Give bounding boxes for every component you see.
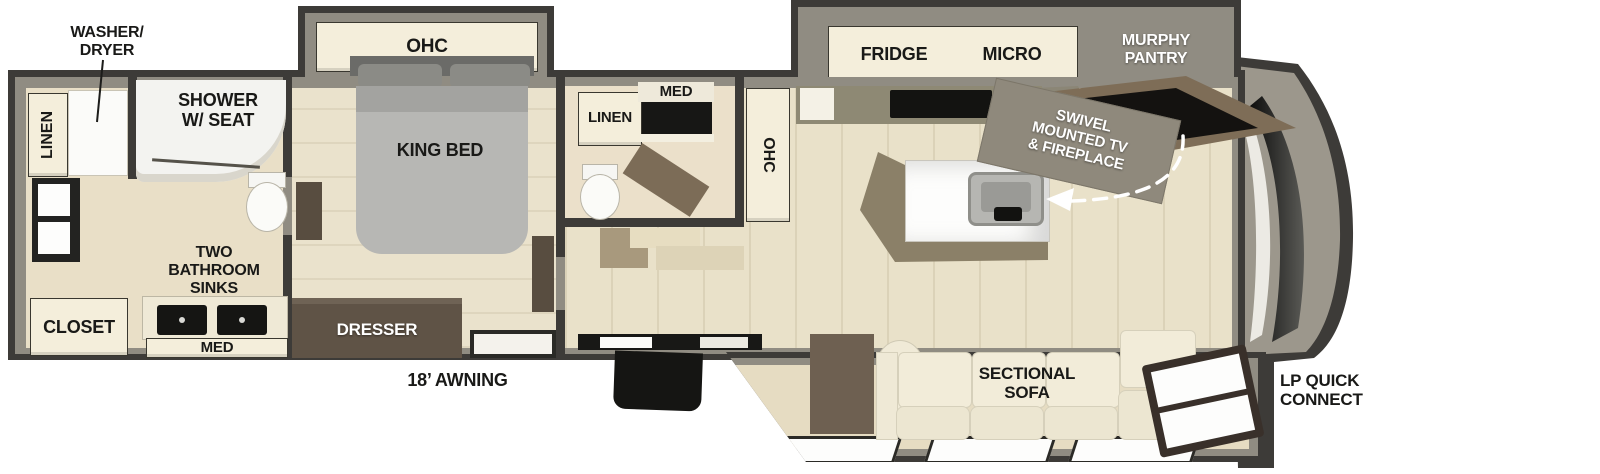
king-bed-label: KING BED [370,140,510,160]
interior-step-1 [630,228,700,248]
washer-dryer-label: WASHER/ DRYER [52,24,162,60]
halfbath-med-top: MED [638,82,714,102]
lp-quick-connect-label: LP QUICK CONNECT [1280,371,1384,409]
front-cap-glass [1250,96,1304,342]
halfbath-linen-cabinet: LINEN [578,92,642,146]
bathroom-sinks-label: TWO BATHROOM SINKS [158,244,270,298]
sofa-seat-cushion-3 [1044,406,1118,440]
dining-table [810,334,874,434]
sink-drain-right [239,317,245,323]
sofa-seat-cushion-1 [896,406,970,440]
halfbath-med-cabinet [642,102,712,134]
bedroom-step [470,330,556,358]
rv-floorplan: OHC FRIDGE MICRO LINEN CLOSET [0,0,1600,474]
rear-window-pane-bottom [38,222,70,254]
sink-drain-left [179,317,185,323]
rear-med-cabinet: MED [146,338,288,358]
front-cap-marble-accent [1242,115,1270,342]
interior-step-2 [656,246,744,270]
wall-bedroom-hall-top [556,77,565,257]
rear-linen-label: LINEN [39,111,57,159]
shower-label: SHOWER W/ SEAT [152,90,284,130]
slideout-window-2 [923,436,1056,464]
rear-med-label: MED [147,340,287,357]
wall-halfbath-bottom [556,218,744,227]
wall-bedroom-hall-bottom [556,310,565,354]
sofa-arm-left [876,352,898,440]
micro-label: MICRO [957,44,1067,64]
closet-cabinet: CLOSET [30,298,128,356]
murphy-pantry-label: MURPHY PANTRY [1102,32,1210,68]
halfbath-linen-label: LINEN [579,110,641,127]
bathroom-sink-left [157,305,207,335]
kitchen-sink-counter [800,88,834,120]
entry-door [600,337,652,348]
halfbath-counter-edge [640,134,714,142]
rear-toilet [246,182,288,232]
fridge-label: FRIDGE [839,44,949,64]
bed-pillow-left [358,64,442,88]
rear-linen-cabinet: LINEN [28,93,68,177]
wall-halfbath-right [735,77,744,227]
bathroom-sink-right [217,305,267,335]
bedroom-wardrobe-right [532,236,554,312]
slideout-window-1 [775,436,902,464]
halfbath-med-label: MED [638,84,714,101]
dresser: DRESSER [292,298,462,358]
island-faucet [994,207,1022,221]
king-bed [356,86,528,254]
entry-door-threshold [578,334,762,350]
washer-dryer-unit [68,90,128,176]
living-ohc-label: OHC [759,137,777,173]
bath-sink-counter [142,296,288,340]
awning-label: 18’ AWNING [390,370,525,390]
sofa-seat-cushion-2 [970,406,1044,440]
rear-window [32,178,80,262]
dresser-label: DRESSER [292,320,462,339]
sectional-sofa-label: SECTIONAL SOFA [952,364,1102,402]
fridge-micro-cabinet: FRIDGE MICRO [828,26,1078,84]
halfbath-toilet [580,174,620,220]
closet-label: CLOSET [31,317,127,337]
living-ohc-cabinet: OHC [746,88,790,222]
bed-fold [356,86,528,112]
bed-pillow-right [450,64,530,88]
rear-window-pane-top [38,184,70,216]
entry-door-pane [700,337,748,348]
cooktop [890,90,992,118]
exterior-entry-steps [613,350,703,411]
bedroom-wardrobe-left [296,182,322,240]
bedroom-ohc-label: OHC [317,36,537,57]
